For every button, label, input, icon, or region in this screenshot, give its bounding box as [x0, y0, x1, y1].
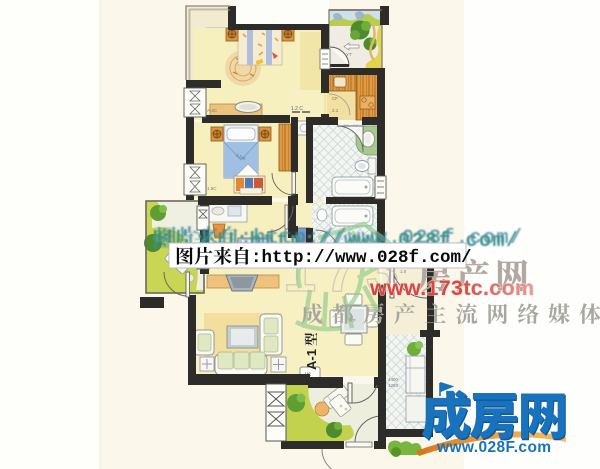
svg-text:2.1: 2.1 — [332, 108, 339, 113]
svg-text:A-1: A-1 — [304, 349, 319, 370]
svg-text::http://www.028f.com/: :http://www.028f.com/ — [251, 248, 472, 268]
svg-text:1280: 1280 — [388, 383, 399, 388]
svg-text:CF: CF — [332, 96, 338, 101]
svg-text:1.5C: 1.5C — [207, 186, 217, 191]
svg-text:A-2C: A-2C — [207, 108, 218, 113]
svg-text:www.028F.com: www.028F.com — [436, 439, 552, 456]
svg-text:4400: 4400 — [388, 377, 399, 382]
svg-text:www.173tc.com: www.173tc.com — [369, 276, 534, 300]
svg-text:1.2 C: 1.2 C — [291, 106, 303, 112]
